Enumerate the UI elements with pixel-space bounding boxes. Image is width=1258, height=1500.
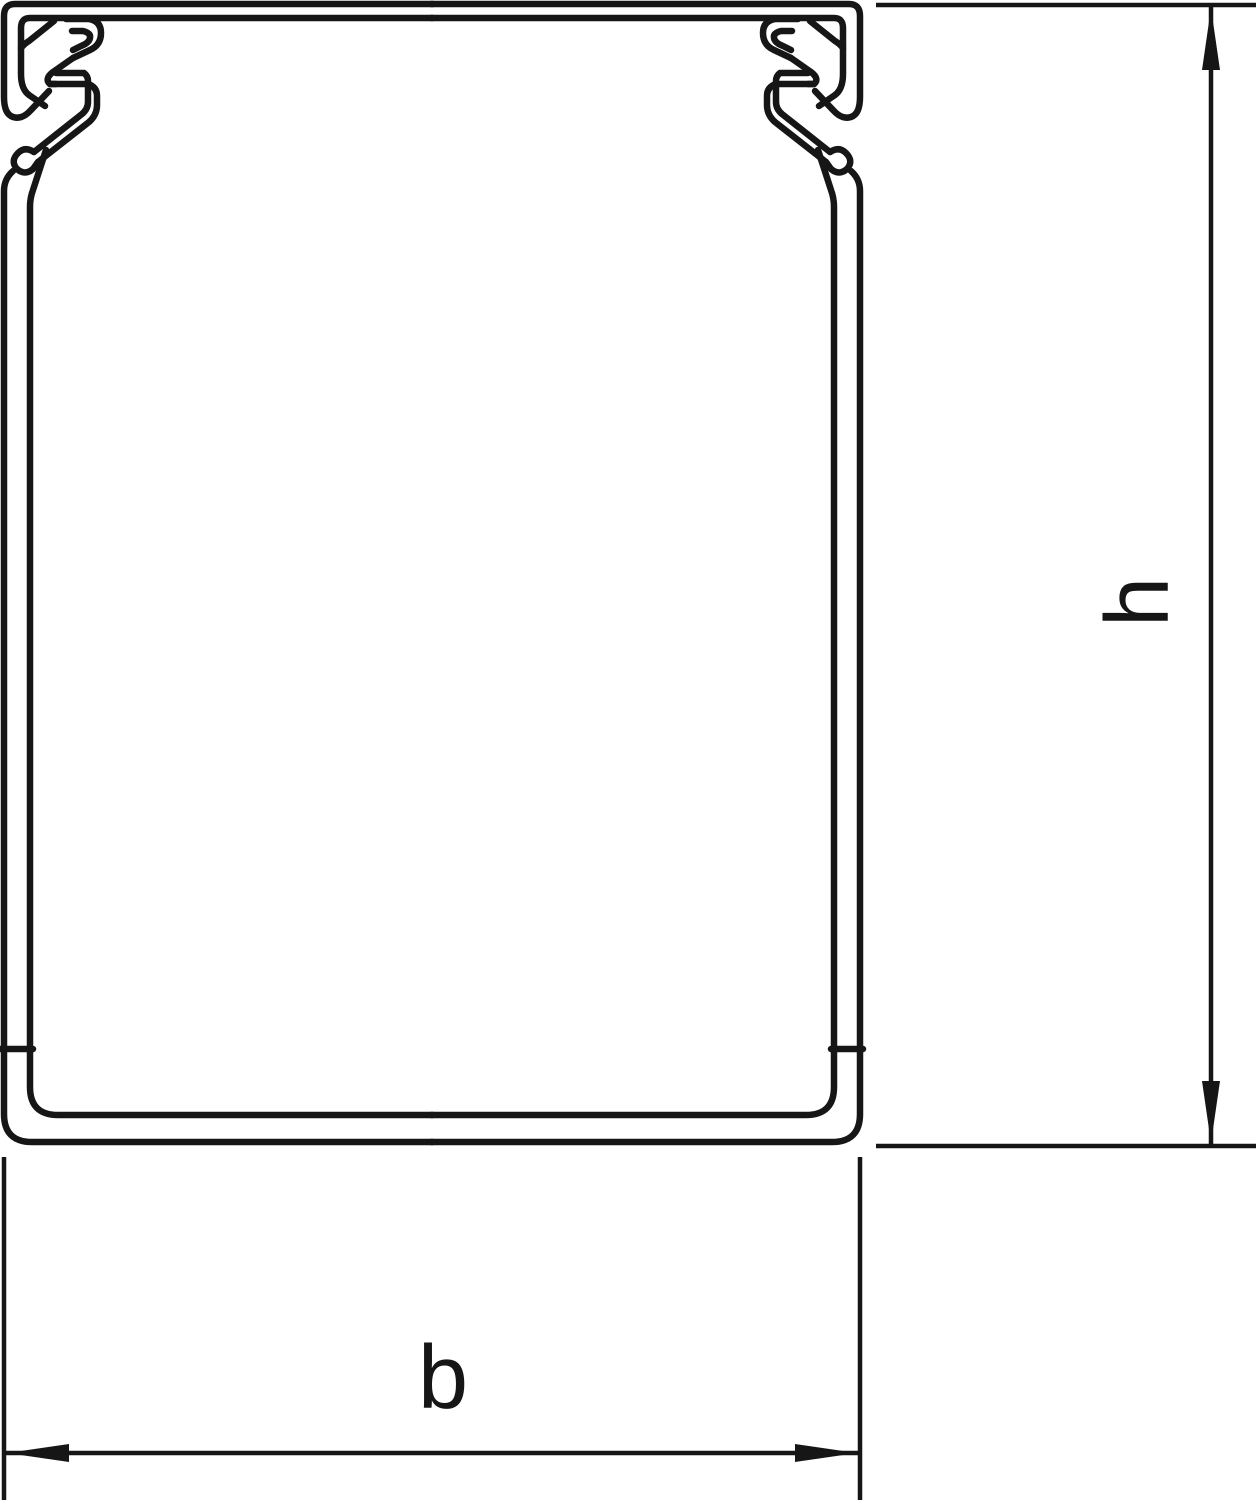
width-dimension-label: b [418, 1328, 468, 1428]
height-dimension: h [876, 5, 1256, 1146]
profile-left-half [1, 4, 433, 1142]
arrow-down-icon [1202, 1081, 1220, 1143]
arrow-up-icon [1202, 8, 1220, 70]
height-dimension-label: h [1088, 577, 1188, 627]
arrow-left-icon [7, 1444, 69, 1462]
trunking-profile [1, 4, 863, 1142]
duct-cross-section-diagram: h b [0, 0, 1258, 1500]
technical-drawing-canvas: h b [0, 0, 1258, 1500]
arrow-right-icon [795, 1444, 857, 1462]
width-dimension: b [4, 1157, 860, 1500]
profile-right-half [431, 4, 863, 1142]
